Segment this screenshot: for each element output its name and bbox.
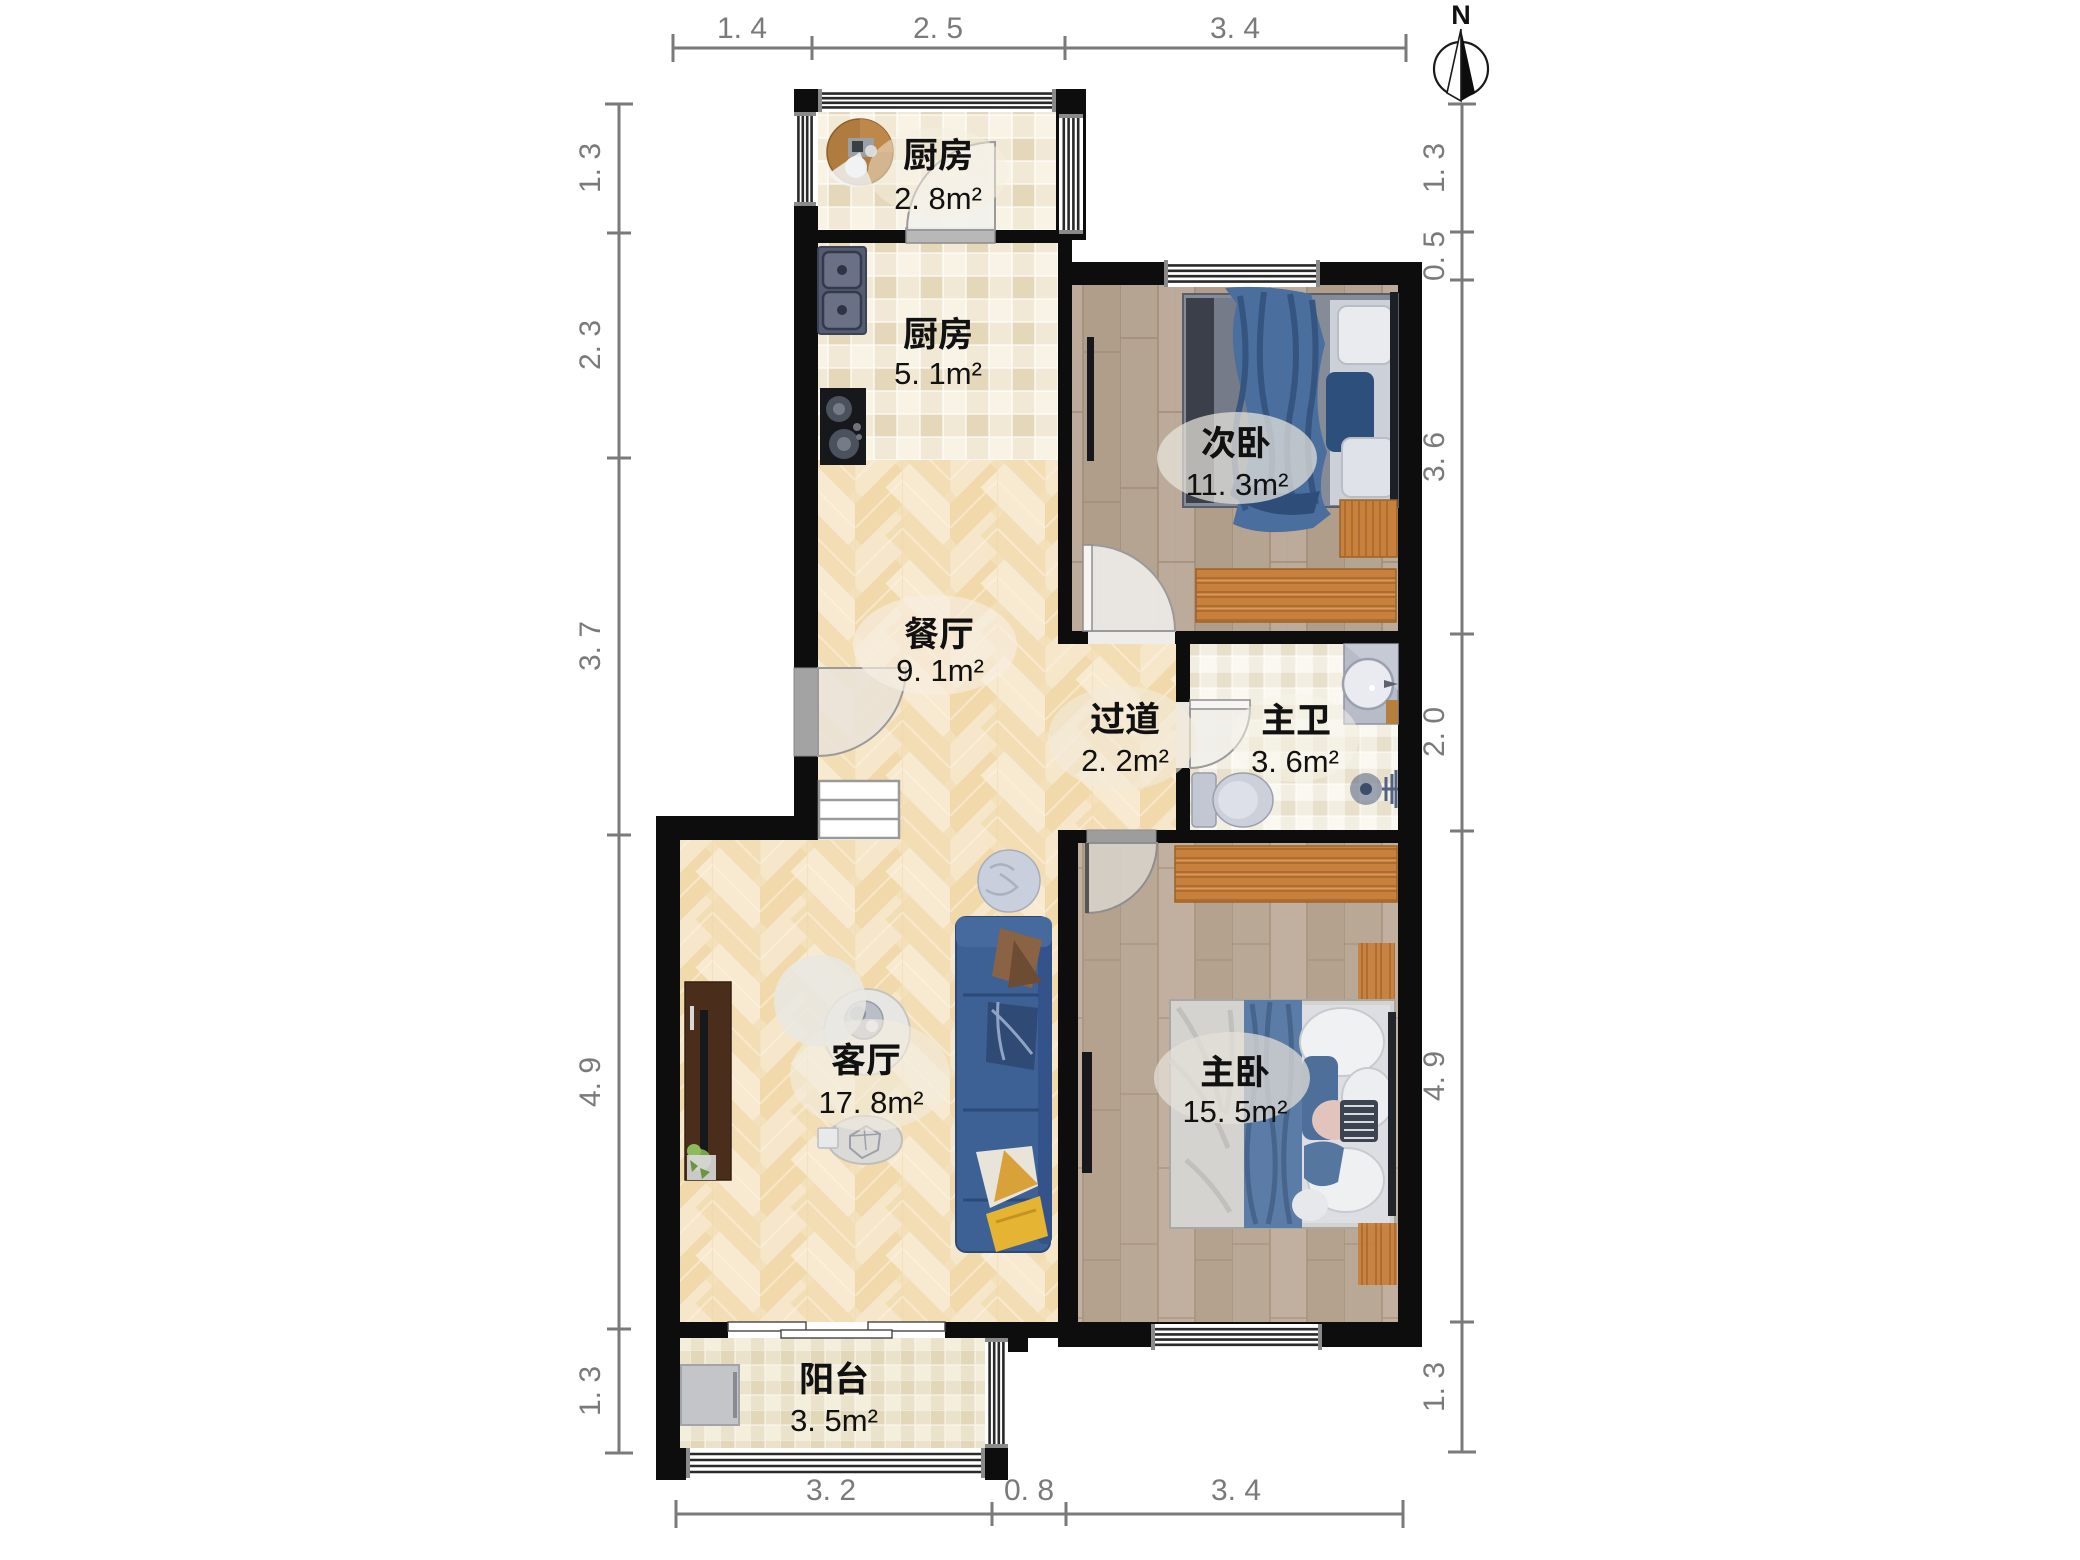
svg-text:15. 5m²: 15. 5m² — [1182, 1094, 1287, 1129]
svg-text:17. 8m²: 17. 8m² — [818, 1085, 923, 1120]
svg-text:3. 5m²: 3. 5m² — [790, 1403, 878, 1438]
svg-text:3. 4: 3. 4 — [1211, 1474, 1261, 1507]
svg-text:N: N — [1451, 0, 1471, 30]
svg-text:9. 1m²: 9. 1m² — [896, 653, 984, 688]
svg-text:4. 9: 4. 9 — [574, 1057, 607, 1107]
svg-text:2. 2m²: 2. 2m² — [1081, 743, 1169, 778]
svg-text:1. 3: 1. 3 — [1418, 1362, 1451, 1412]
svg-text:1. 3: 1. 3 — [1418, 143, 1451, 193]
svg-text:3. 2: 3. 2 — [806, 1474, 856, 1507]
svg-text:1. 4: 1. 4 — [717, 12, 767, 45]
svg-text:3. 6: 3. 6 — [1418, 432, 1451, 482]
svg-text:1. 3: 1. 3 — [574, 143, 607, 193]
svg-text:5. 1m²: 5. 1m² — [894, 356, 982, 391]
svg-text:3. 4: 3. 4 — [1210, 12, 1260, 45]
svg-text:3. 7: 3. 7 — [574, 621, 607, 671]
svg-text:0. 8: 0. 8 — [1004, 1474, 1054, 1507]
svg-text:2. 5: 2. 5 — [913, 12, 963, 45]
svg-text:11. 3m²: 11. 3m² — [1186, 467, 1289, 502]
svg-text:3. 6m²: 3. 6m² — [1251, 744, 1339, 779]
svg-text:0. 5: 0. 5 — [1418, 231, 1451, 281]
svg-text:2. 3: 2. 3 — [574, 320, 607, 370]
svg-text:1. 3: 1. 3 — [574, 1366, 607, 1416]
svg-text:2. 8m²: 2. 8m² — [894, 181, 982, 216]
svg-text:2. 0: 2. 0 — [1418, 707, 1451, 757]
svg-text:4. 9: 4. 9 — [1418, 1051, 1451, 1101]
